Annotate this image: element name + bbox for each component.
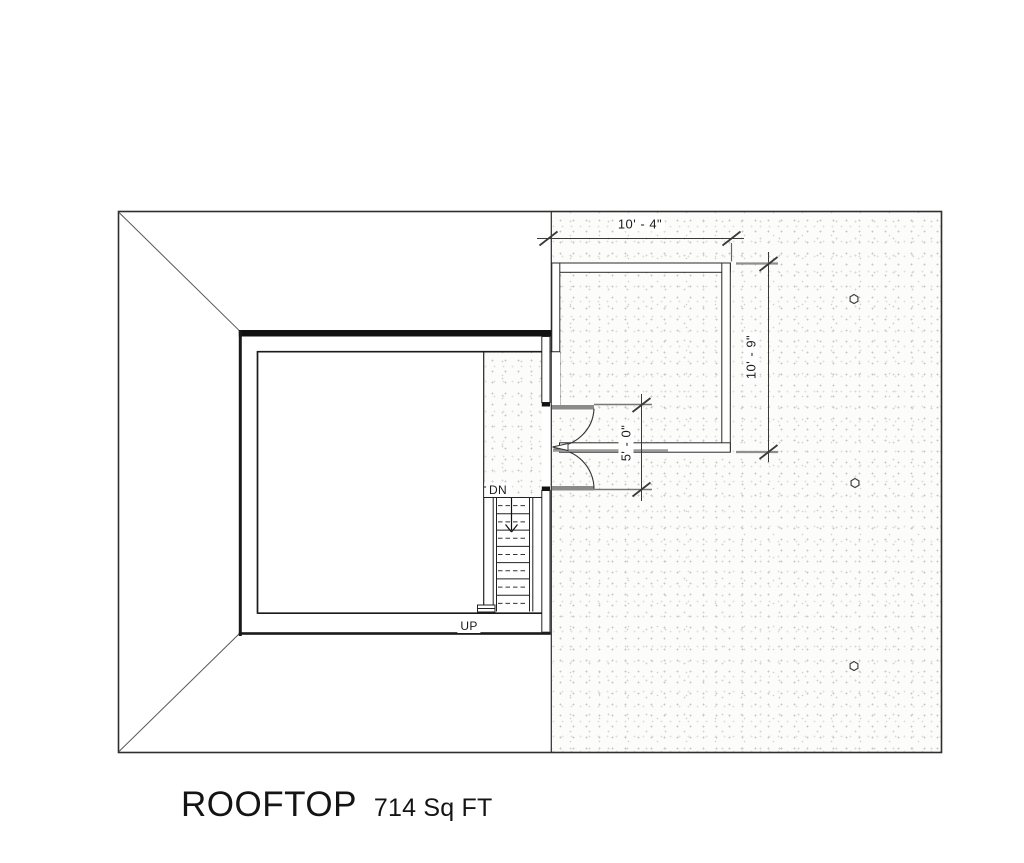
roof-hip-line-bottom <box>119 634 240 752</box>
door-panel-bottom <box>552 486 594 491</box>
railing-top-band <box>552 263 731 272</box>
building-wall-right-upper <box>542 337 550 403</box>
dimension-label-deck-depth: 10' - 9" <box>744 332 759 382</box>
door-swing-arc-top <box>554 409 595 447</box>
floor-plan-canvas: 10' - 4" 10' - 9" 5' - 0" DN UP ROOFTOP … <box>0 0 1024 863</box>
hexagon-marker <box>850 662 858 671</box>
door-jamb-cap-bottom <box>542 487 550 492</box>
building-wall-bottom <box>239 632 551 635</box>
plan-area-label: 714 Sq FT <box>374 794 493 823</box>
roof-outline <box>119 212 942 753</box>
building-wall-left <box>239 330 242 636</box>
railing-right-band <box>722 263 731 452</box>
door-panel-top <box>552 405 594 410</box>
roof-hip-line-top <box>119 213 240 331</box>
building-wall-right-lower <box>542 491 550 633</box>
plan-linework <box>0 0 1024 863</box>
building-wall-top <box>239 330 551 337</box>
title-block: ROOFTOP 714 Sq FT <box>181 785 492 825</box>
roof-vent-markers <box>850 295 859 671</box>
plan-title: ROOFTOP <box>181 785 357 825</box>
dimension-label-door-opening: 5' - 0" <box>619 422 634 465</box>
hexagon-marker <box>850 295 858 304</box>
stair-down-label: DN <box>486 483 510 497</box>
door-swing-arc-bottom <box>554 449 595 489</box>
hexagon-marker <box>851 479 859 488</box>
dimension-deck-width <box>537 232 744 262</box>
door-side-clear-strip <box>552 352 560 405</box>
stair-up-label: UP <box>457 619 480 633</box>
dimension-label-deck-width: 10' - 4" <box>615 217 665 232</box>
staircase <box>478 483 542 613</box>
door-jamb-cap-top <box>542 403 550 407</box>
